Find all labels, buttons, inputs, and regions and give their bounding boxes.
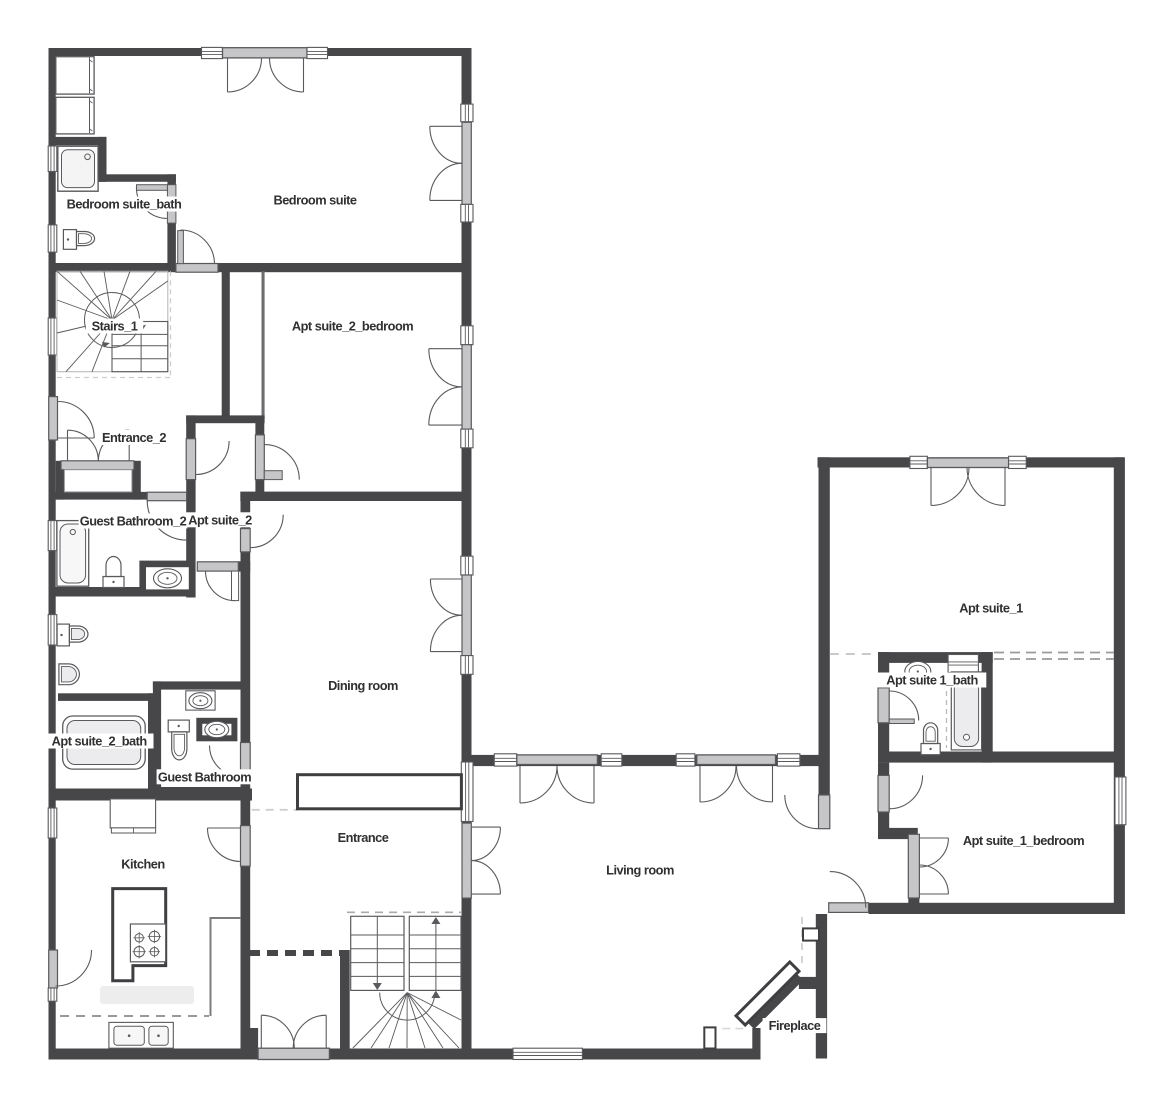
svg-text:Kitchen: Kitchen — [121, 857, 165, 872]
svg-text:Guest Bathroom_2: Guest Bathroom_2 — [80, 514, 187, 529]
svg-text:Entrance: Entrance — [338, 830, 389, 845]
svg-text:Entrance_2: Entrance_2 — [102, 430, 166, 445]
svg-text:Apt suite 1_bath: Apt suite 1_bath — [886, 673, 978, 688]
svg-text:Living room: Living room — [606, 863, 674, 878]
svg-text:Dining room: Dining room — [328, 678, 398, 693]
svg-text:Guest Bathroom: Guest Bathroom — [158, 769, 251, 784]
svg-text:Apt suite_2_bedroom: Apt suite_2_bedroom — [292, 319, 413, 334]
svg-text:Apt suite_1_bedroom: Apt suite_1_bedroom — [963, 833, 1084, 848]
svg-text:Apt suite_2_bath: Apt suite_2_bath — [52, 734, 148, 749]
svg-text:Bedroom suite: Bedroom suite — [273, 193, 356, 208]
svg-text:Apt suite_2: Apt suite_2 — [188, 512, 252, 527]
svg-text:Stairs_1: Stairs_1 — [92, 319, 138, 334]
svg-text:Bedroom suite_bath: Bedroom suite_bath — [67, 197, 182, 212]
svg-text:Fireplace: Fireplace — [769, 1018, 821, 1033]
svg-text:Apt suite_1: Apt suite_1 — [959, 601, 1023, 616]
